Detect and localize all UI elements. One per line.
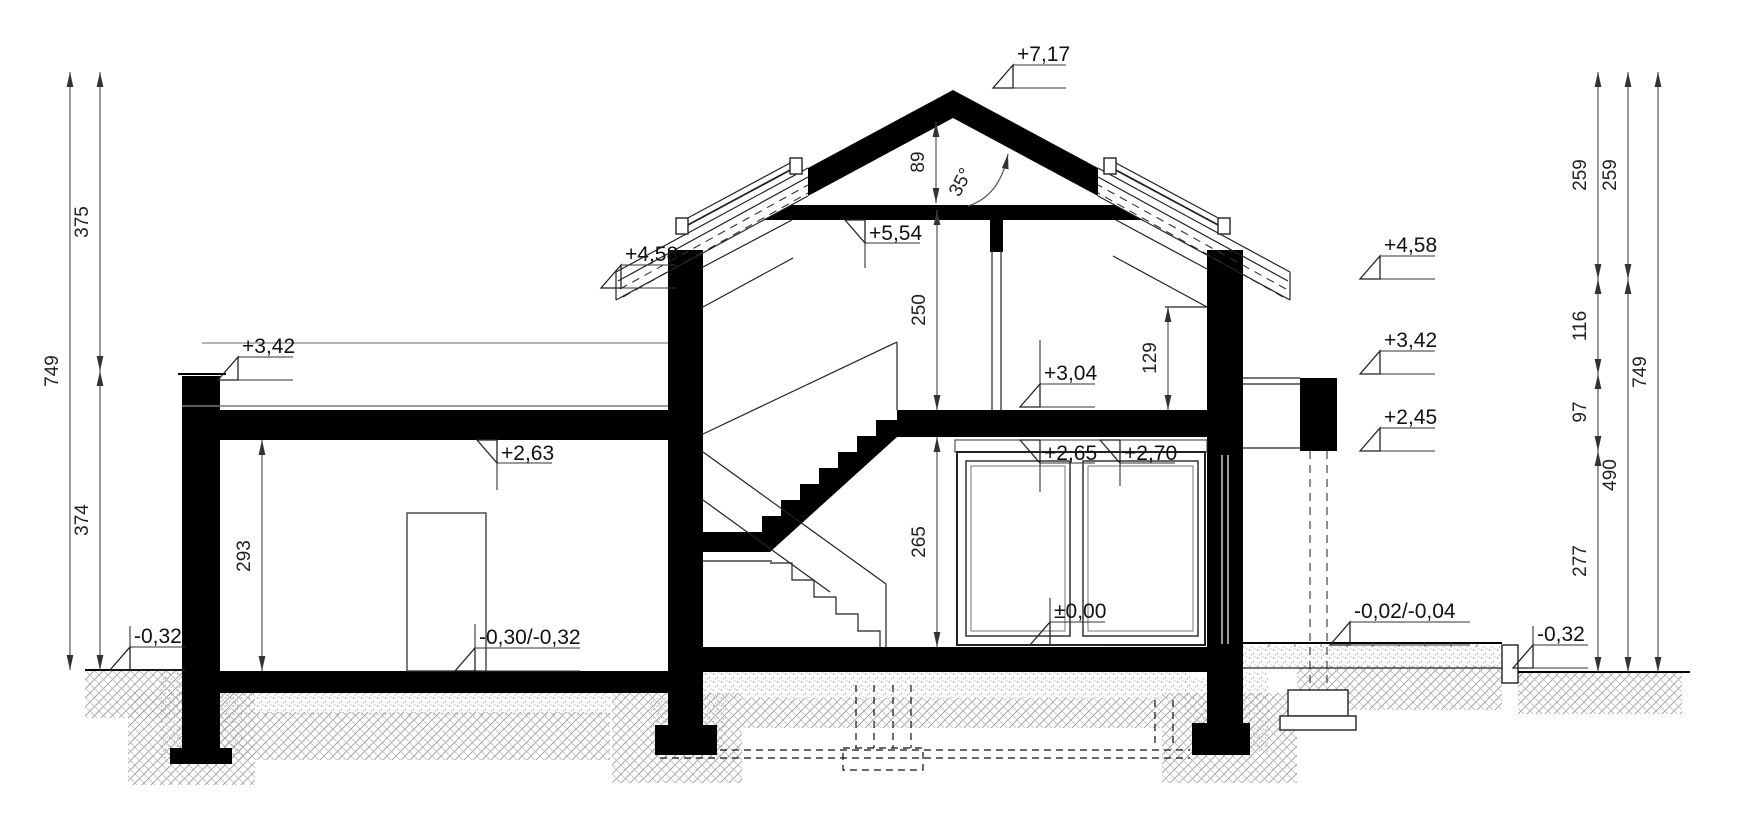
stair-flight xyxy=(703,420,897,552)
left-wing-details xyxy=(178,343,668,671)
dim-right-band: 97 xyxy=(1570,401,1591,422)
ground-floor-slab xyxy=(668,647,1243,672)
dim-right-ground: 277 xyxy=(1570,545,1591,577)
level-grade-left: -0,32 xyxy=(134,625,182,648)
attic-collar-ceiling xyxy=(764,205,1142,220)
flag-attic-floor: +3,04 xyxy=(1020,340,1097,407)
level-garage-ceiling: +2,63 xyxy=(501,442,554,465)
main-left-wall xyxy=(668,250,703,682)
roof-left-slope xyxy=(808,90,953,196)
flag-ridge: +7,17 xyxy=(993,43,1070,88)
attic-post xyxy=(992,250,1001,410)
section-drawing-canvas: 749 375 374 259 116 97 277 259 490 749 2… xyxy=(0,0,1745,825)
dim-knee-height: 129 xyxy=(1140,342,1161,374)
dim-right-storey: 490 xyxy=(1600,459,1621,491)
flag-grade-right: -0,32 xyxy=(1513,623,1588,668)
dim-left-upper: 375 xyxy=(72,206,93,238)
level-garage-floor: -0,30/-0,32 xyxy=(479,626,581,649)
level-eaves-right: +4,58 xyxy=(1384,234,1437,257)
flag-parapet-left: +3,42 xyxy=(218,335,295,380)
flag-ceiling-b: +2,70 xyxy=(1100,440,1177,486)
main-left-foundation xyxy=(668,672,703,725)
level-grade-right: -0,32 xyxy=(1537,623,1585,646)
dim-right-total: 749 xyxy=(1630,356,1651,388)
level-parapet-left: +3,42 xyxy=(242,335,295,358)
level-terrace: -0,02/-0,04 xyxy=(1354,600,1456,623)
level-ceiling-a: +2,65 xyxy=(1044,442,1097,465)
elevation-flags: +7,17 +4,58 +3,42 +2,63 +5,54 xyxy=(110,43,1588,671)
level-eaves-left: +4,58 xyxy=(625,243,678,266)
flag-ground-floor: ±0,00 xyxy=(1030,598,1106,645)
main-left-footing xyxy=(655,725,717,755)
dimensions-left: 749 375 374 xyxy=(42,72,100,670)
garage-door-outline xyxy=(407,513,486,671)
level-parapet-right: +3,42 xyxy=(1384,329,1437,352)
section-drawing: 749 375 374 259 116 97 277 259 490 749 2… xyxy=(0,0,1745,825)
dim-right-roof-b: 259 xyxy=(1600,159,1621,191)
garage-flat-roof-slab xyxy=(220,410,668,440)
main-right-footing xyxy=(1192,723,1250,755)
terrace-curb xyxy=(1502,645,1518,683)
dim-left-lower: 374 xyxy=(72,504,93,536)
attic-railing xyxy=(703,342,897,434)
level-attic-ceiling: +5,54 xyxy=(869,222,922,245)
garage-wall-footing xyxy=(170,748,232,764)
dim-left-total: 749 xyxy=(42,355,63,387)
flag-canopy-soffit: +2,45 xyxy=(1360,406,1437,451)
flag-parapet-right: +3,42 xyxy=(1360,329,1437,374)
flag-eaves-right: +4,58 xyxy=(1360,234,1437,279)
post-footing xyxy=(1288,690,1348,716)
main-right-foundation xyxy=(1207,672,1243,723)
level-canopy-soffit: +2,45 xyxy=(1384,406,1437,429)
level-attic-floor: +3,04 xyxy=(1044,362,1097,385)
dim-ridge-height: 89 xyxy=(908,151,929,172)
structure-walls-slabs xyxy=(170,90,1337,764)
dim-right-knee: 116 xyxy=(1570,311,1591,341)
level-ridge: +7,17 xyxy=(1017,43,1070,66)
flag-grade-left: -0,32 xyxy=(110,625,185,670)
main-right-wall xyxy=(1207,250,1243,682)
flag-garage-floor: -0,30/-0,32 xyxy=(455,624,581,671)
ridge-post-top xyxy=(990,220,1003,252)
flag-garage-ceiling: +2,63 xyxy=(477,440,554,490)
attic-floor-slab xyxy=(897,410,1243,437)
lower-flight-steps xyxy=(770,563,880,647)
roof-pitch-angle: 35° xyxy=(945,165,977,200)
level-ceiling-b: +2,70 xyxy=(1124,442,1177,465)
canopy-fascia xyxy=(1300,378,1337,451)
garage-floor-slab xyxy=(220,671,668,693)
flag-terrace: -0,02/-0,04 xyxy=(1330,600,1470,645)
dim-ground-height: 265 xyxy=(909,526,930,558)
dim-attic-height: 250 xyxy=(909,294,930,326)
dimensions-right: 259 116 97 277 259 490 749 xyxy=(1570,72,1658,672)
flag-attic-ceiling: +5,54 xyxy=(845,220,922,268)
garage-left-wall xyxy=(182,376,220,750)
roof-right-slope xyxy=(953,90,1098,196)
flag-eaves-left: +4,58 xyxy=(601,243,678,288)
dim-garage-height: 293 xyxy=(234,540,255,572)
dim-right-roof-a: 259 xyxy=(1570,159,1591,191)
level-ground-floor: ±0,00 xyxy=(1054,600,1106,623)
